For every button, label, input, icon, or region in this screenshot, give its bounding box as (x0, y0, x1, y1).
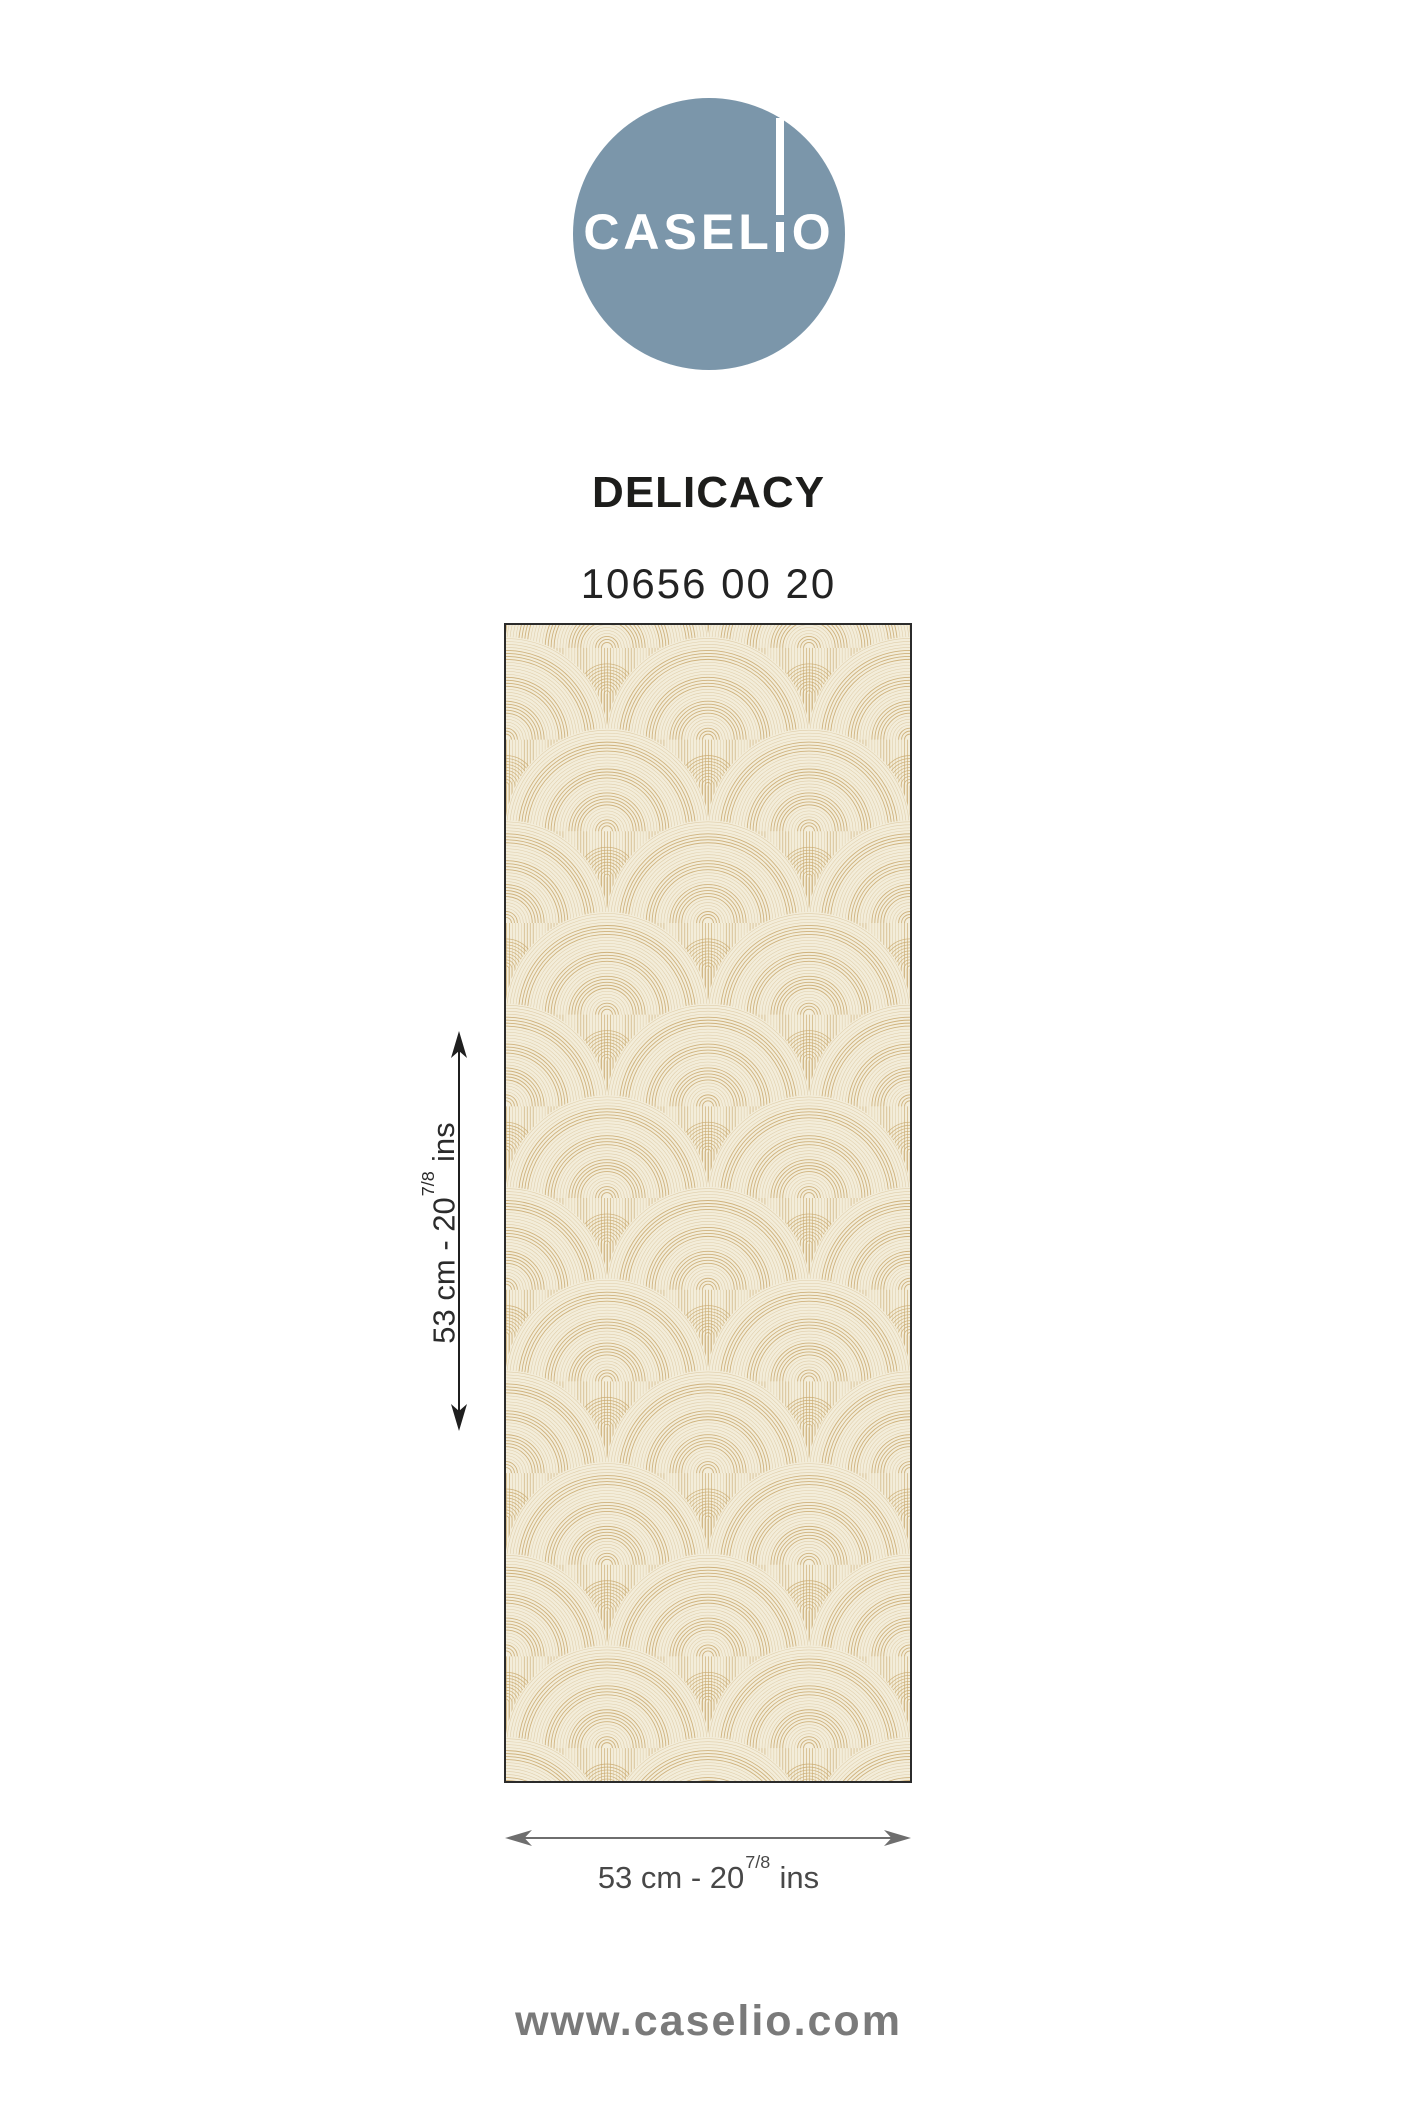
width-dimension-label: 53 cm - 207/8ins (0, 1860, 1417, 1896)
height-dimension-label: 53 cm - 207/8ins (420, 1033, 454, 1433)
logo-text-left: CASEL (583, 207, 772, 257)
product-reference: 10656 00 20 (0, 560, 1417, 608)
width-fraction: 7/8 (745, 1852, 770, 1872)
width-value: 53 cm - 20 (598, 1860, 744, 1895)
width-unit: ins (780, 1860, 820, 1895)
wallpaper-sample (504, 623, 912, 1783)
logo-text-right: O (792, 207, 835, 257)
collection-title: DELICACY (0, 468, 1417, 518)
logo-i-bar-icon (776, 118, 784, 252)
website-link[interactable]: www.caselio.com (0, 1997, 1417, 2046)
width-arrow-icon (503, 1827, 913, 1849)
height-value: 53 cm - 20 (426, 1197, 461, 1343)
brand-logo-text: CASEL O (573, 207, 845, 257)
height-unit: ins (426, 1122, 461, 1162)
height-fraction: 7/8 (418, 1171, 438, 1196)
product-sheet: CASEL O DELICACY 10656 00 20 53 cm - 207… (0, 0, 1417, 2126)
wallpaper-pattern (506, 625, 910, 1781)
brand-logo: CASEL O (573, 98, 845, 370)
